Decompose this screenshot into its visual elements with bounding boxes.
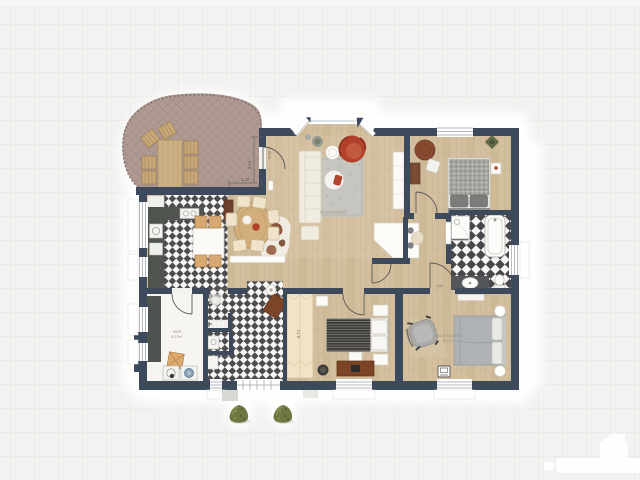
- svg-text:WOHNZIMMER: WOHNZIMMER: [320, 211, 348, 215]
- svg-text:3,71: 3,71: [296, 329, 301, 338]
- svg-text:15,9 m²: 15,9 m²: [442, 339, 454, 343]
- svg-text:1,19: 1,19: [241, 177, 250, 182]
- svg-text:HWR: HWR: [173, 330, 182, 334]
- svg-text:4,39: 4,39: [267, 150, 272, 159]
- svg-text:3,40: 3,40: [247, 160, 252, 169]
- svg-text:SCHLAFZIMMER 1: SCHLAFZIMMER 1: [433, 334, 463, 338]
- svg-text:8,27m²: 8,27m²: [171, 335, 183, 339]
- svg-text:2,81: 2,81: [437, 284, 444, 288]
